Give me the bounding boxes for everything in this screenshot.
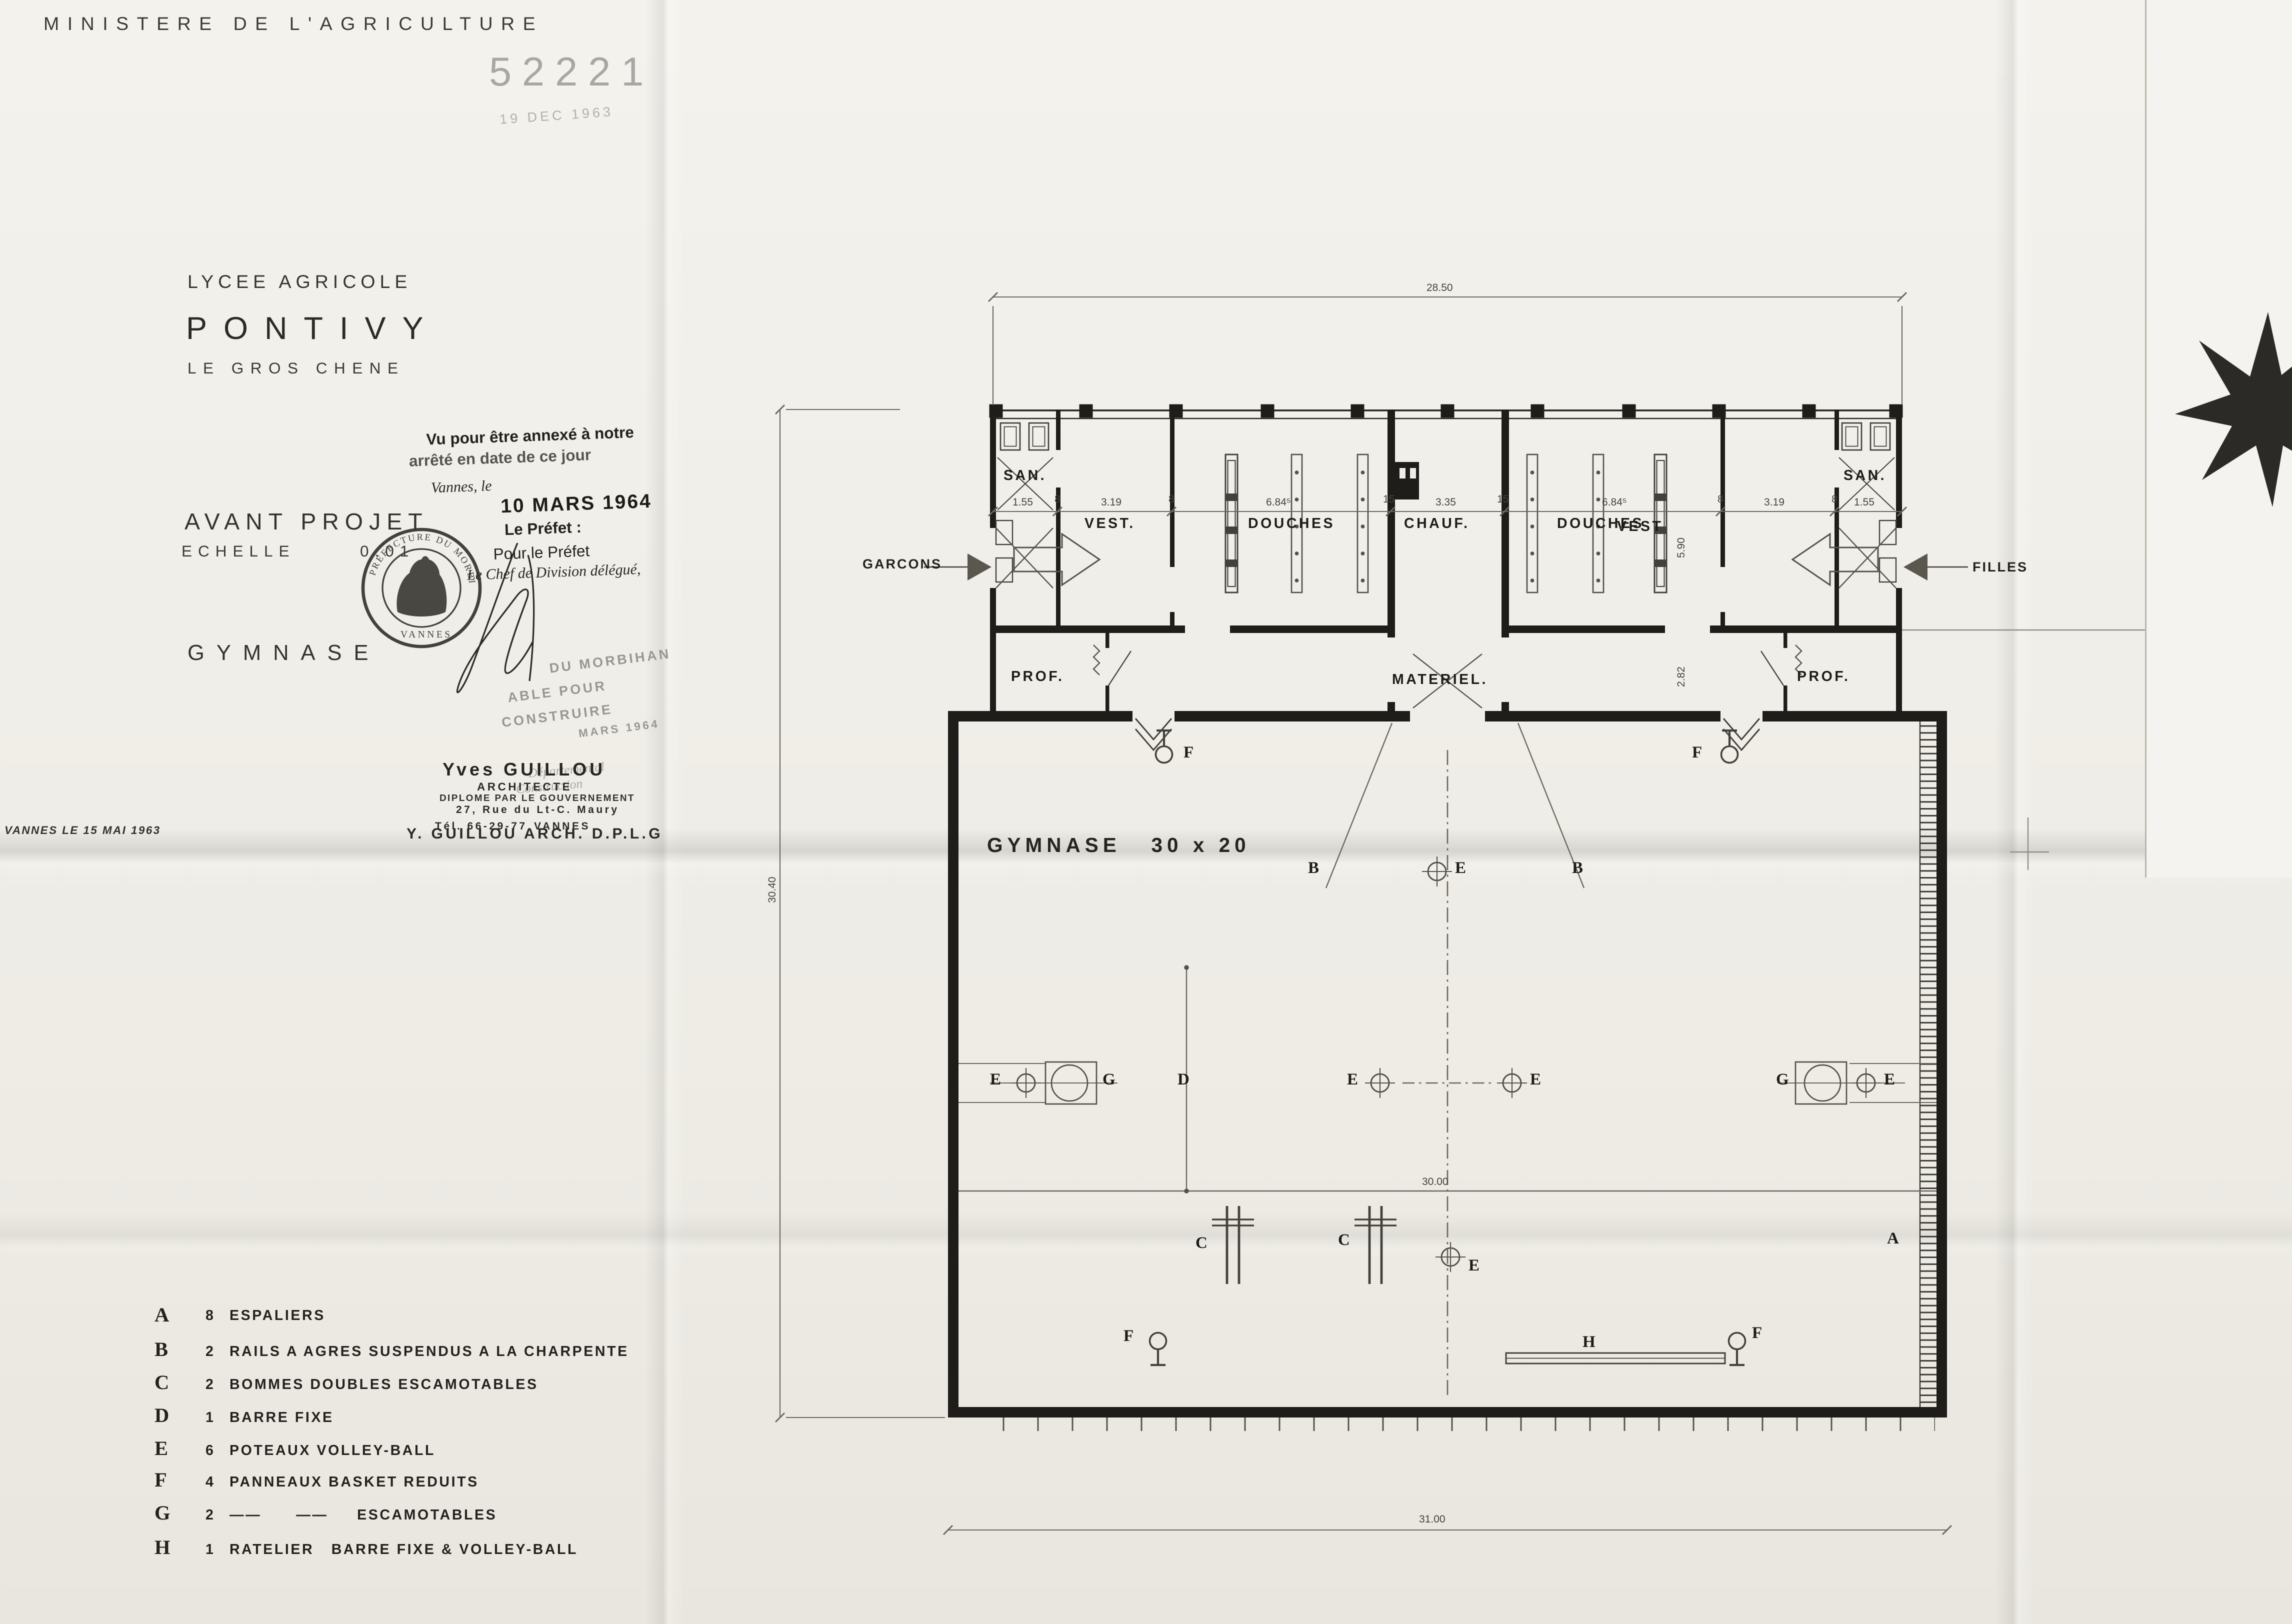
legend-key: B bbox=[154, 1338, 168, 1362]
legend-key: H bbox=[154, 1536, 170, 1560]
chain-dim-5: 15 bbox=[1383, 495, 1394, 505]
marker-a1: A bbox=[1887, 1230, 1899, 1248]
marker-g2: G bbox=[1776, 1071, 1789, 1089]
legend-key: F bbox=[154, 1468, 167, 1492]
legend-key: D bbox=[154, 1404, 169, 1428]
legend-label: —— —— ESCAMOTABLES bbox=[229, 1507, 497, 1524]
ministry-header: MINISTERE DE L'AGRICULTURE bbox=[43, 13, 543, 34]
dim-v1: 5.90 bbox=[1677, 537, 1687, 558]
stamp-line-5: Pour le Préfet bbox=[493, 542, 590, 564]
school-name-line1: LYCEE AGRICOLE bbox=[187, 271, 411, 292]
marker-g1: G bbox=[1102, 1071, 1115, 1089]
room-label-san-right: SAN. bbox=[1843, 468, 1886, 484]
marker-e5: E bbox=[1455, 859, 1466, 877]
school-name: PONTIVY bbox=[186, 312, 440, 348]
dim-v2: 2.82 bbox=[1677, 666, 1687, 687]
dim-top: 28.50 bbox=[1426, 283, 1453, 294]
room-label-chauf: CHAUF. bbox=[1404, 516, 1470, 532]
marker-e4: E bbox=[1884, 1071, 1895, 1089]
chain-dim-1: 8 bbox=[1054, 495, 1060, 505]
legend-qty: 1 bbox=[205, 1410, 213, 1426]
room-label-vest-left: VEST. bbox=[1084, 516, 1135, 532]
stamp-line-3: Vannes, le bbox=[430, 478, 492, 497]
marker-e1: E bbox=[990, 1071, 1001, 1089]
marker-f1: F bbox=[1183, 744, 1193, 762]
scale-word: ECHELLE bbox=[181, 543, 295, 561]
chain-dim-6: 3.35 bbox=[1435, 498, 1456, 508]
project-phase-title: AVANT PROJET bbox=[184, 510, 428, 537]
room-label-douches-left: DOUCHES bbox=[1248, 516, 1335, 532]
legend-label: BARRE FIXE bbox=[229, 1410, 334, 1426]
legend-label: BOMMES DOUBLES ESCAMOTABLES bbox=[229, 1377, 538, 1393]
room-label-prof-right: PROF. bbox=[1797, 669, 1850, 685]
marker-f2: F bbox=[1692, 744, 1702, 762]
chain-dim-2: 3.19 bbox=[1101, 498, 1121, 508]
marker-e2: E bbox=[1347, 1071, 1358, 1089]
court-markings bbox=[958, 723, 1936, 1399]
architect-name: Yves GUILLOU bbox=[442, 759, 605, 780]
room-label-vest-right: VEST bbox=[1617, 519, 1663, 535]
legend-key: A bbox=[154, 1303, 169, 1327]
dim-mid: 30.00 bbox=[1422, 1177, 1448, 1188]
legend-label: POTEAUX VOLLEY-BALL bbox=[229, 1443, 435, 1459]
marker-c2: C bbox=[1338, 1231, 1350, 1249]
architect-diploma: DIPLOME PAR LE GOUVERNEMENT bbox=[439, 793, 635, 804]
marker-d1: D bbox=[1177, 1071, 1189, 1089]
legend-qty: 8 bbox=[205, 1308, 213, 1324]
marker-h1: H bbox=[1582, 1333, 1595, 1351]
chain-dim-0: 1.55 bbox=[1012, 498, 1033, 508]
legend-key: C bbox=[154, 1371, 169, 1395]
chain-dim-9: 8 bbox=[1717, 495, 1723, 505]
school-name-line2: LE GROS CHENE bbox=[187, 360, 405, 378]
legend-key: E bbox=[154, 1437, 168, 1461]
architect-address: 27, Rue du Lt-C. Maury bbox=[456, 805, 619, 816]
legend-qty: 4 bbox=[205, 1474, 213, 1491]
entrance-arrows bbox=[924, 553, 1968, 580]
marker-e6: E bbox=[1468, 1257, 1479, 1275]
marker-f3: F bbox=[1123, 1327, 1133, 1345]
legend-label: RAILS A AGRES SUSPENDUS A LA CHARPENTE bbox=[229, 1344, 629, 1360]
marker-e3: E bbox=[1530, 1071, 1541, 1089]
footer-credit: Y. GUILLOU ARCH. D.P.L.G bbox=[406, 826, 663, 843]
chain-dim-11: 8 bbox=[1831, 495, 1837, 505]
scale-value: 0.01 bbox=[360, 543, 414, 561]
seal-bottom-text: VANNES bbox=[400, 629, 452, 640]
chain-dim-10: 3.19 bbox=[1764, 498, 1784, 508]
chain-dim-3: 8 bbox=[1168, 495, 1174, 505]
chain-dim-8: 6.84⁵ bbox=[1602, 498, 1627, 508]
door-label-garcons: GARCONS bbox=[862, 556, 942, 571]
legend-label: PANNEAUX BASKET REDUITS bbox=[229, 1474, 479, 1491]
marker-f4: F bbox=[1752, 1324, 1762, 1342]
dim-left: 30.40 bbox=[768, 876, 778, 903]
room-label-prof-left: PROF. bbox=[1011, 669, 1064, 685]
scanned-drawing-sheet: PREFECTURE DU MORBIHAN VANNES MINISTERE … bbox=[0, 0, 2292, 1624]
room-label-materiel: MATERIEL. bbox=[1392, 672, 1488, 688]
room-label-san-left: SAN. bbox=[1003, 468, 1046, 484]
annex-walls bbox=[989, 404, 1903, 717]
marker-b1: B bbox=[1308, 859, 1319, 877]
annex-fixtures bbox=[996, 423, 1896, 750]
chain-dim-7: 15 bbox=[1497, 495, 1508, 505]
legend-qty: 6 bbox=[205, 1443, 213, 1459]
legend-label: RATELIER BARRE FIXE & VOLLEY-BALL bbox=[229, 1542, 578, 1558]
seal-arc-text: PREFECTURE DU MORBIHAN bbox=[0, 0, 477, 585]
stamp-line-4: Le Préfet : bbox=[504, 519, 581, 539]
legend-key: G bbox=[154, 1501, 170, 1525]
drawing-title: GYMNASE bbox=[187, 642, 380, 666]
chain-dim-4: 6.84⁵ bbox=[1266, 498, 1291, 508]
registry-number-stamp: 52221 bbox=[489, 49, 654, 96]
legend-qty: 2 bbox=[205, 1507, 213, 1524]
ink-star-blot bbox=[2175, 312, 2292, 507]
legend-qty: 2 bbox=[205, 1344, 213, 1360]
svg-text:PREFECTURE DU MORBIHAN: PREFECTURE DU MORBIHAN bbox=[0, 0, 477, 585]
hall-label: GYMNASE 30 x 20 bbox=[987, 834, 1250, 856]
legend-qty: 1 bbox=[205, 1542, 213, 1558]
chain-dim-12: 1.55 bbox=[1854, 498, 1874, 508]
footer-date-place: VANNES LE 15 MAI 1963 bbox=[4, 823, 161, 837]
legend-qty: 2 bbox=[205, 1377, 213, 1393]
dim-bottom: 31.00 bbox=[1419, 1515, 1445, 1525]
door-label-filles: FILLES bbox=[1972, 559, 2028, 574]
marker-c1: C bbox=[1195, 1234, 1207, 1252]
architect-title: ARCHITECTE bbox=[477, 780, 572, 793]
marker-b2: B bbox=[1572, 859, 1583, 877]
legend-label: ESPALIERS bbox=[229, 1308, 325, 1324]
